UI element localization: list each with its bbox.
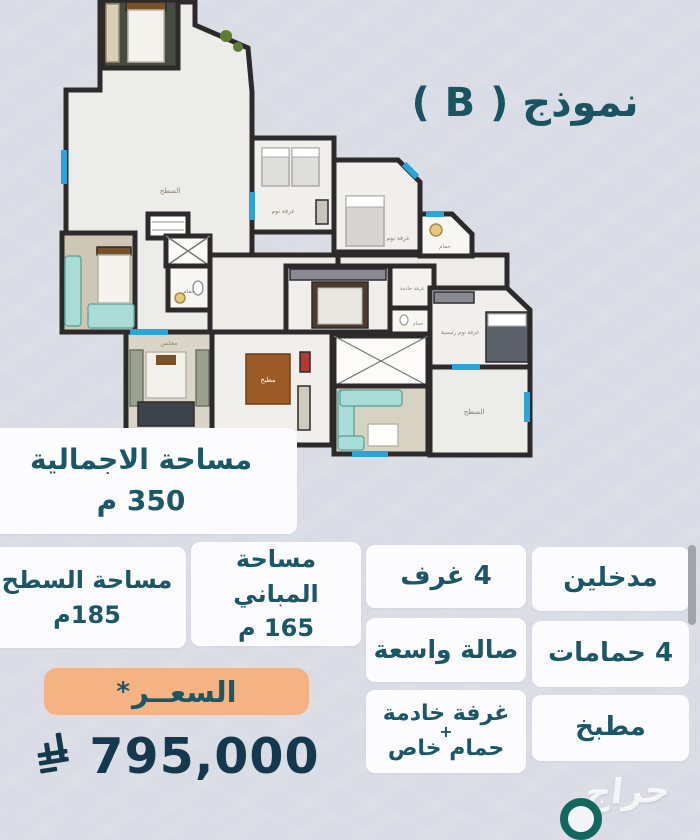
roof-area-value: 185م	[53, 598, 121, 633]
kitchen-text: مطبخ	[575, 709, 646, 747]
price-label-text: السعــر	[132, 675, 237, 709]
price-row: 795,000	[28, 720, 323, 792]
label-master-bedroom: غرفة نوم رئيسية	[441, 330, 479, 336]
building-area-box: مساحة المباني 165 م	[191, 542, 361, 646]
elevator-shaft	[166, 236, 210, 266]
price-value: 795,000	[89, 728, 319, 785]
room-bathroom-a	[168, 266, 210, 310]
building-area-value: 165 م	[238, 611, 314, 646]
stairwell	[334, 336, 428, 386]
total-area-label: مساحة الاجمالية	[30, 440, 252, 481]
maid-room-line2: حمام خاص	[388, 735, 504, 763]
entrances-text: مدخلين	[563, 560, 657, 598]
label-majlis: مجلس	[161, 340, 178, 347]
room-living	[334, 386, 428, 454]
haraj-logo-ring-icon	[560, 798, 602, 840]
room-left-bedroom	[62, 233, 135, 332]
bathrooms-box: 4 حمامات	[532, 621, 689, 687]
label-kitchen: مطبخ	[261, 376, 276, 384]
bathrooms-text: 4 حمامات	[548, 635, 673, 673]
total-area-value: 350 م	[97, 481, 186, 522]
label-bedroom-b: غرفة نوم	[387, 235, 410, 242]
room-majlis	[126, 332, 212, 436]
total-area-box: مساحة الاجمالية 350 م	[0, 428, 297, 534]
room-bedroom-a	[252, 138, 334, 232]
label-bath-b: حمام	[439, 244, 451, 250]
room-master-bedroom	[430, 288, 530, 367]
building-area-label: مساحة المباني	[191, 542, 361, 612]
label-bath-a: حمام	[183, 289, 195, 295]
room-bedroom-c	[286, 266, 390, 332]
label-bath-maid: حمام	[413, 321, 424, 327]
scrollbar-thumb[interactable]	[688, 545, 696, 625]
hall-text: صالة واسعة	[374, 632, 519, 668]
saudi-riyal-symbol-icon	[31, 730, 75, 782]
roof-area-box: مساحة السطح 185م	[0, 547, 186, 648]
hall-box: صالة واسعة	[366, 618, 526, 682]
asterisk: *	[116, 677, 130, 707]
kitchen-box: مطبخ	[532, 695, 689, 761]
listing-flyer: { "colors": { "accent_teal": "#1a5866", …	[0, 0, 700, 814]
label-bedroom-a: غرفة نوم	[272, 208, 295, 215]
model-title: نموذج ( B )	[360, 68, 690, 138]
label-roof-right: السطح	[464, 408, 485, 416]
maid-room-box: غرفة خادمة + حمام خاص	[366, 690, 526, 773]
roof-area-label: مساحة السطح	[2, 563, 173, 598]
rooms-count-text: 4 غرف	[400, 558, 491, 596]
entrances-box: مدخلين	[532, 547, 689, 611]
rooms-count-box: 4 غرف	[366, 545, 526, 608]
label-roof-top: السطح	[160, 187, 181, 195]
price-label-badge: السعــر *	[44, 668, 309, 715]
room-top-bedroom	[103, 0, 178, 68]
label-maid-room: غرفة خادمة	[400, 286, 425, 292]
